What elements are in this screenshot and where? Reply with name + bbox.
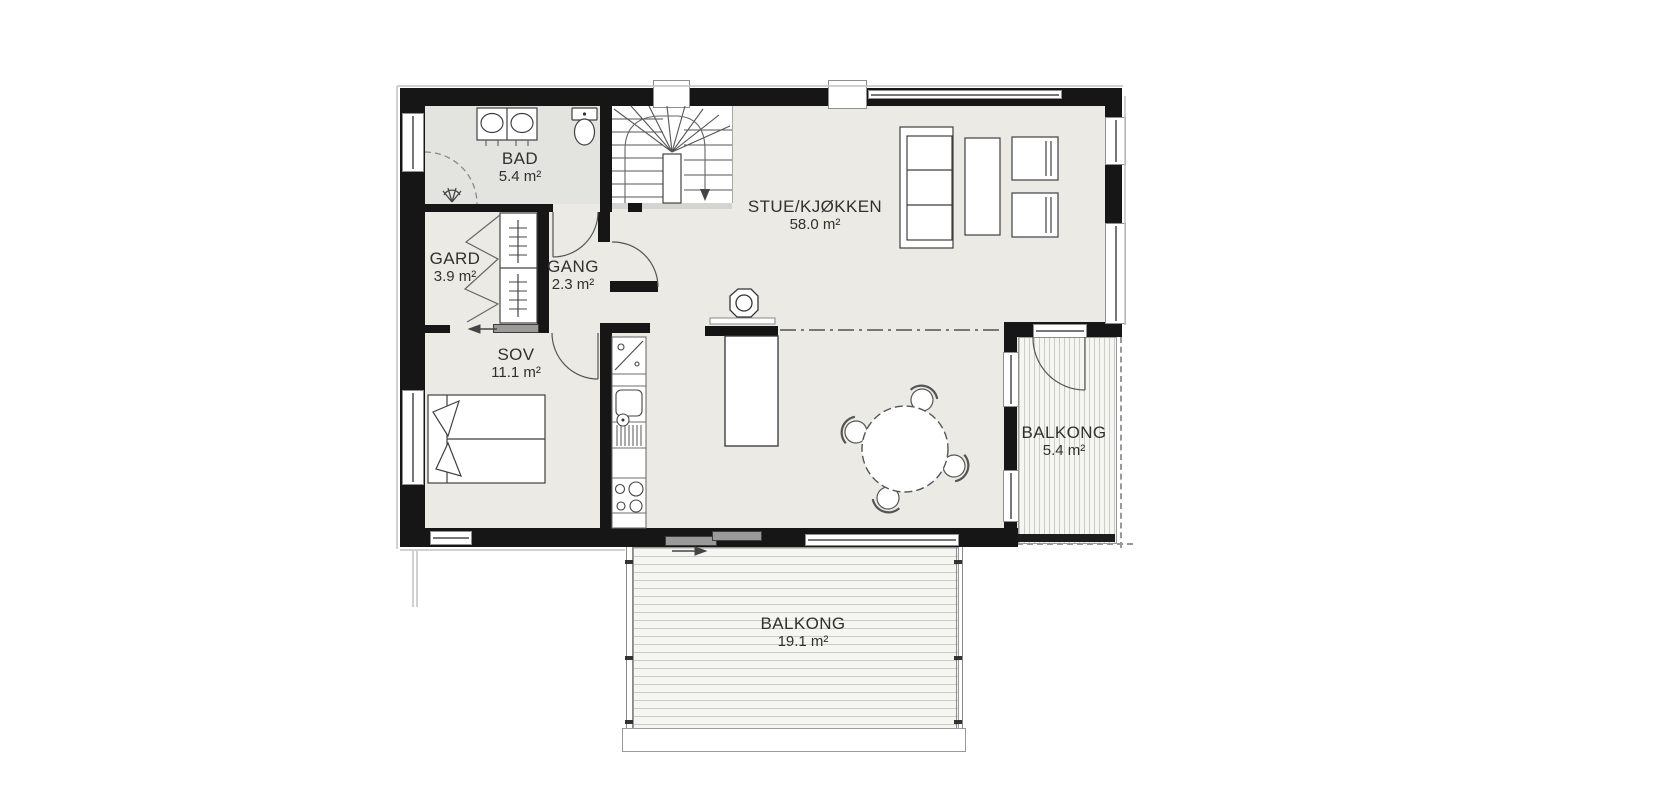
toilet [572,108,597,145]
wood-stove [730,289,758,317]
sliding-door-arrow-right [672,547,706,555]
door-bad [553,212,598,257]
room-label-balkong-right: BALKONG 5.4 m² [1022,424,1107,460]
sliding-door-arrow-left [469,325,497,333]
double-sink-vanity [477,108,537,146]
door-sov [552,333,598,379]
floor-plan: BAD 5.4 m² GARD 3.9 m² GANG 2.3 m² STUE/… [0,0,1670,800]
room-label-stue: STUE/KJØKKEN 58.0 m² [748,198,882,234]
dining-set [838,382,972,516]
room-label-bad: BAD 5.4 m² [499,150,542,186]
door-balcony [1033,337,1085,390]
armchair-2 [1012,193,1058,237]
coffee-table [965,138,1000,235]
kitchen-island [705,318,778,446]
plan-drawing [0,0,1670,800]
shower-head-icon [443,188,461,202]
double-bed [428,395,545,483]
corner-shower [425,152,477,204]
armchair-1 [1012,137,1058,180]
winder-stair [612,106,732,203]
round-dining-table [862,406,948,492]
kitchen-counter [612,337,646,528]
room-label-gard: GARD 3.9 m² [430,250,481,286]
room-label-balkong-bottom: BALKONG 19.1 m² [761,615,846,651]
door-stue [612,242,658,287]
appliance-hatch [617,425,641,446]
stair-down-arrow [700,189,710,201]
sofa-3-seat [900,127,953,248]
room-label-sov: SOV 11.1 m² [491,346,541,382]
room-label-gang: GANG 2.3 m² [547,258,599,294]
